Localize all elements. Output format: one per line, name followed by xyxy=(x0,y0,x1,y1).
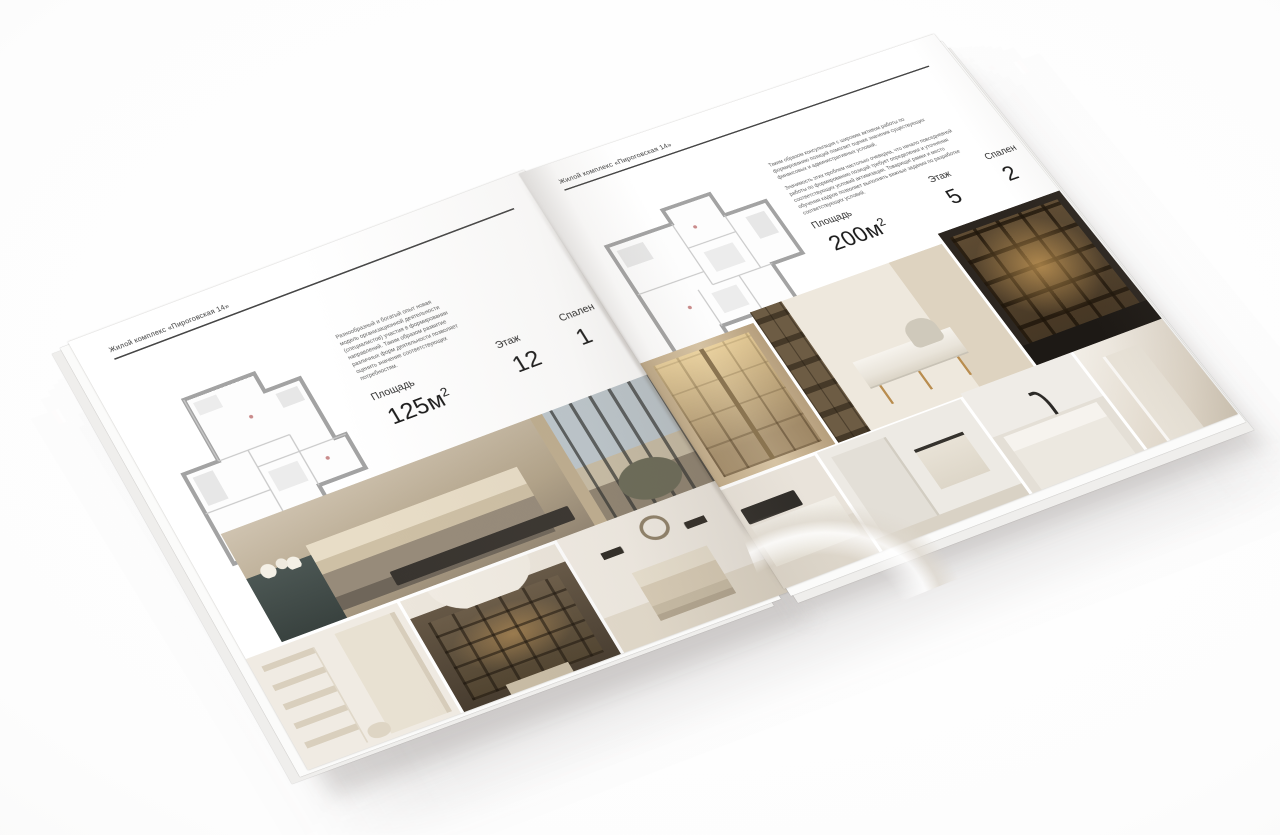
stat-bedrooms-value: 2 xyxy=(997,157,1039,187)
deco-bed xyxy=(632,546,736,621)
stat-floor-value: 12 xyxy=(508,346,548,379)
photo-backdrop: Жилой комплекс «Пироговская 14» Разнообр… xyxy=(0,0,1280,835)
stat-floor-value: 5 xyxy=(941,183,973,209)
left-page-description: Разнообразный и богатый опыт новая модел… xyxy=(334,292,480,388)
deco-black-faucet xyxy=(1028,389,1059,419)
stat-floor: Этаж 12 xyxy=(493,330,547,380)
stat-floor-label: Этаж xyxy=(493,330,529,351)
paragraph: Разнообразный и богатый опыт новая модел… xyxy=(334,292,477,383)
stat-bedrooms-value: 1 xyxy=(571,317,615,351)
stat-floor: Этаж 5 xyxy=(926,169,974,211)
